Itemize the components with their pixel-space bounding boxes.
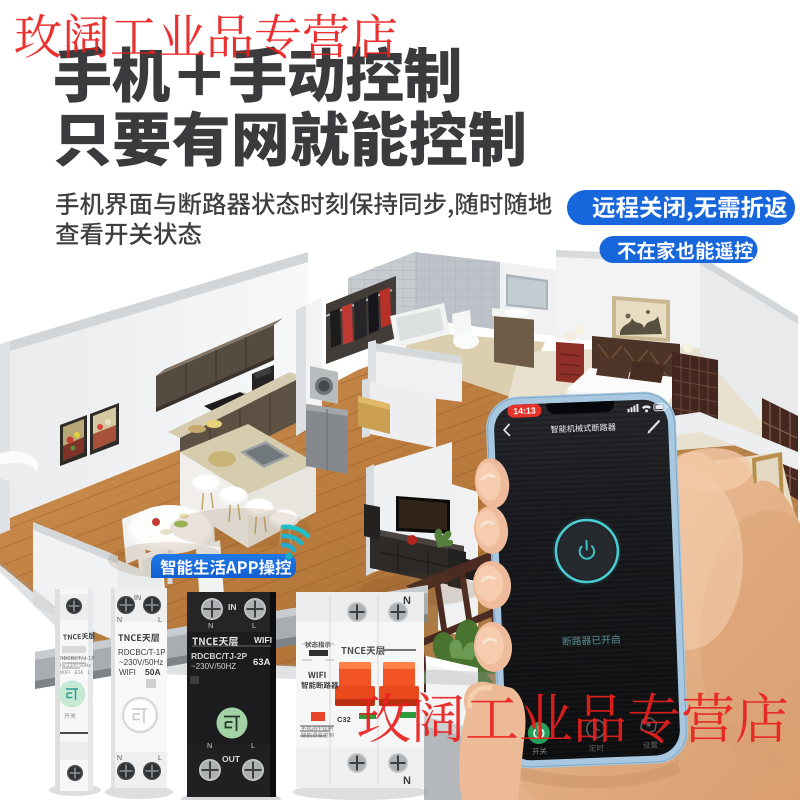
svg-text:C32: C32 <box>337 715 351 724</box>
svg-text:N: N <box>117 755 122 762</box>
svg-text:N: N <box>207 741 212 750</box>
svg-text:IN: IN <box>228 602 237 612</box>
svg-text:IN: IN <box>134 595 141 602</box>
svg-text:50A: 50A <box>145 667 161 677</box>
svg-text:RDCBC/T-1P: RDCBC/T-1P <box>118 648 166 657</box>
svg-text:~230V/50HZ: ~230V/50HZ <box>191 662 236 671</box>
svg-text:WIFI: WIFI <box>254 635 272 645</box>
svg-text:OUT: OUT <box>222 754 241 764</box>
svg-text:N: N <box>403 595 411 607</box>
svg-text:N: N <box>403 775 411 787</box>
svg-text:RDCBC/TJ-2P: RDCBC/TJ-2P <box>191 651 248 661</box>
svg-text:63A: 63A <box>253 657 271 668</box>
svg-text:L: L <box>251 741 255 750</box>
svg-text:~230V/50Hz: ~230V/50Hz <box>119 658 163 667</box>
svg-text:14:13: 14:13 <box>513 405 536 416</box>
svg-text:WIFI: WIFI <box>119 668 136 677</box>
svg-text:L: L <box>158 617 162 624</box>
svg-text:N: N <box>117 617 122 624</box>
svg-text:L: L <box>252 621 256 630</box>
svg-text:L: L <box>158 755 162 762</box>
svg-text:N: N <box>208 621 213 630</box>
